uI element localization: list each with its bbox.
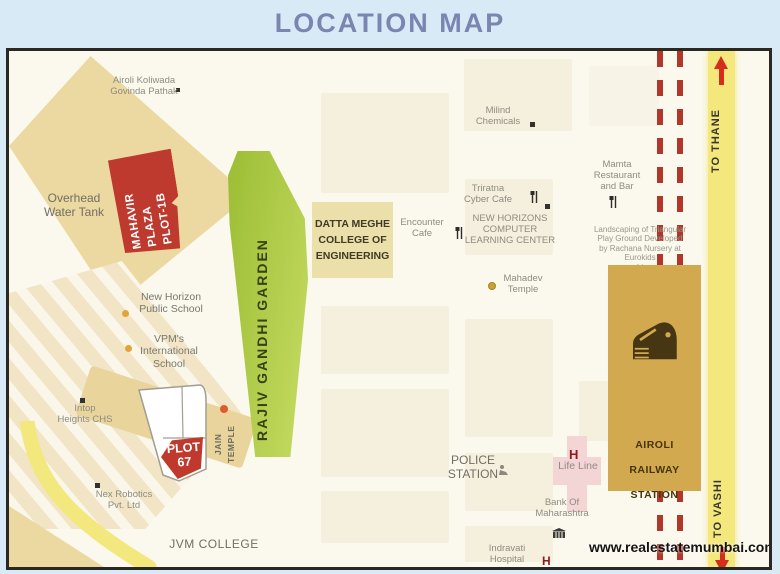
label-indravati-hospital: Indravati Hospital: [475, 543, 539, 565]
city-block: [321, 93, 449, 193]
to-vashi-arrow-icon: [715, 560, 729, 570]
station-label: AIROLI RAILWAY STATION: [608, 433, 701, 509]
label-bank-of-maharashtra: Bank Of Maharashtra: [524, 497, 600, 519]
label-mamta-restaurant: Mamta Restaurant and Bar: [584, 159, 650, 193]
page-title: LOCATION MAP: [0, 8, 780, 39]
label-intop-heights: Intop Heights CHS: [47, 403, 123, 425]
label-jvm-college: JVM COLLEGE: [164, 537, 264, 551]
hospital-marker-lifeline: H: [569, 447, 578, 462]
label-new-horizon-school: New Horizon Public School: [127, 291, 215, 316]
nex-robotics-marker: [95, 483, 100, 488]
restaurant-icon: [609, 196, 618, 208]
location-map-page: LOCATION MAP TO THANE TO VASH: [0, 0, 780, 574]
restaurant-icon: [530, 191, 539, 203]
garden-label: RAJIV GANDHI GARDEN: [254, 171, 270, 441]
map-canvas: TO THANE TO VASHI RAJIV GANDHI GARDEN MA…: [6, 48, 772, 570]
bank-icon: [552, 528, 566, 538]
watermark: www.realestatemumbai.com: [589, 539, 772, 555]
mahavir-plaza-label: MAHAVIR PLAZA PLOT-1B: [117, 156, 177, 250]
city-block: [465, 319, 553, 437]
city-block: [321, 389, 449, 477]
label-encounter-cafe: Encounter Cafe: [391, 217, 453, 239]
city-block: [321, 491, 449, 543]
city-block: [589, 66, 659, 126]
to-thane-arrow-stem: [719, 67, 724, 85]
datta-meghe-college: DATTA MEGHE COLLEGE OF ENGINEERING: [312, 202, 393, 278]
train-icon: [626, 317, 682, 363]
label-jain-temple: JAIN TEMPLE: [212, 414, 238, 474]
rajiv-gandhi-garden: RAJIV GANDHI GARDEN: [228, 151, 308, 457]
label-police-station: POLICE STATION: [441, 453, 505, 481]
milind-chemicals-marker: [530, 122, 535, 127]
hospital-marker-indravati: H: [542, 554, 551, 568]
label-triratna-cyber-cafe: Triratna Cyber Cafe: [449, 183, 527, 205]
to-thane-label: TO THANE: [710, 91, 723, 191]
label-milind-chemicals: Milind Chemicals: [468, 105, 528, 127]
city-block: [321, 306, 449, 374]
jain-temple-marker: [220, 405, 228, 413]
label-mahadev-temple: Mahadev Temple: [495, 273, 551, 295]
label-airoli-koliwada: Airoli Koliwada Govinda Pathak: [89, 75, 199, 97]
label-nex-robotics: Nex Robotics Pvt. Ltd: [79, 489, 169, 511]
new-horizons-marker: [545, 204, 550, 209]
to-vashi-label: TO VASHI: [712, 471, 725, 546]
label-overhead-water-tank: Overhead Water Tank: [27, 191, 121, 219]
college-label: DATTA MEGHE COLLEGE OF ENGINEERING: [315, 216, 390, 265]
label-vpm-school: VPM's International School: [128, 333, 210, 370]
airoli-railway-station: AIROLI RAILWAY STATION: [608, 265, 701, 491]
plot-67-label: PLOT 67: [166, 441, 202, 471]
label-new-horizons-center: NEW HORIZONS COMPUTER LEARNING CENTER: [450, 213, 570, 247]
